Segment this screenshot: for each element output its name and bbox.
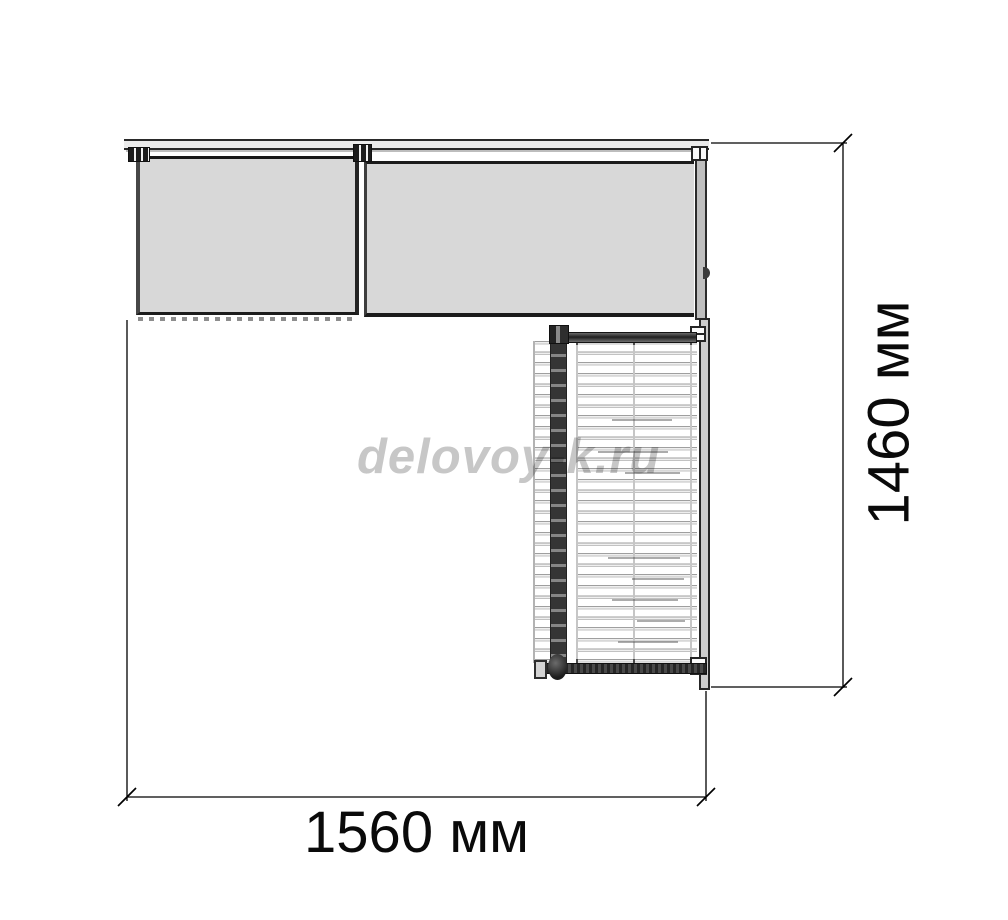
width-dimension-label: 1560 мм	[127, 799, 706, 866]
height-dimension-label: 1460 мм	[856, 301, 923, 526]
watermark-text: delovoy-k.ru	[357, 429, 660, 485]
diagram-canvas: 1560 мм 1460 мм delovoy-k.ru	[0, 0, 1008, 920]
